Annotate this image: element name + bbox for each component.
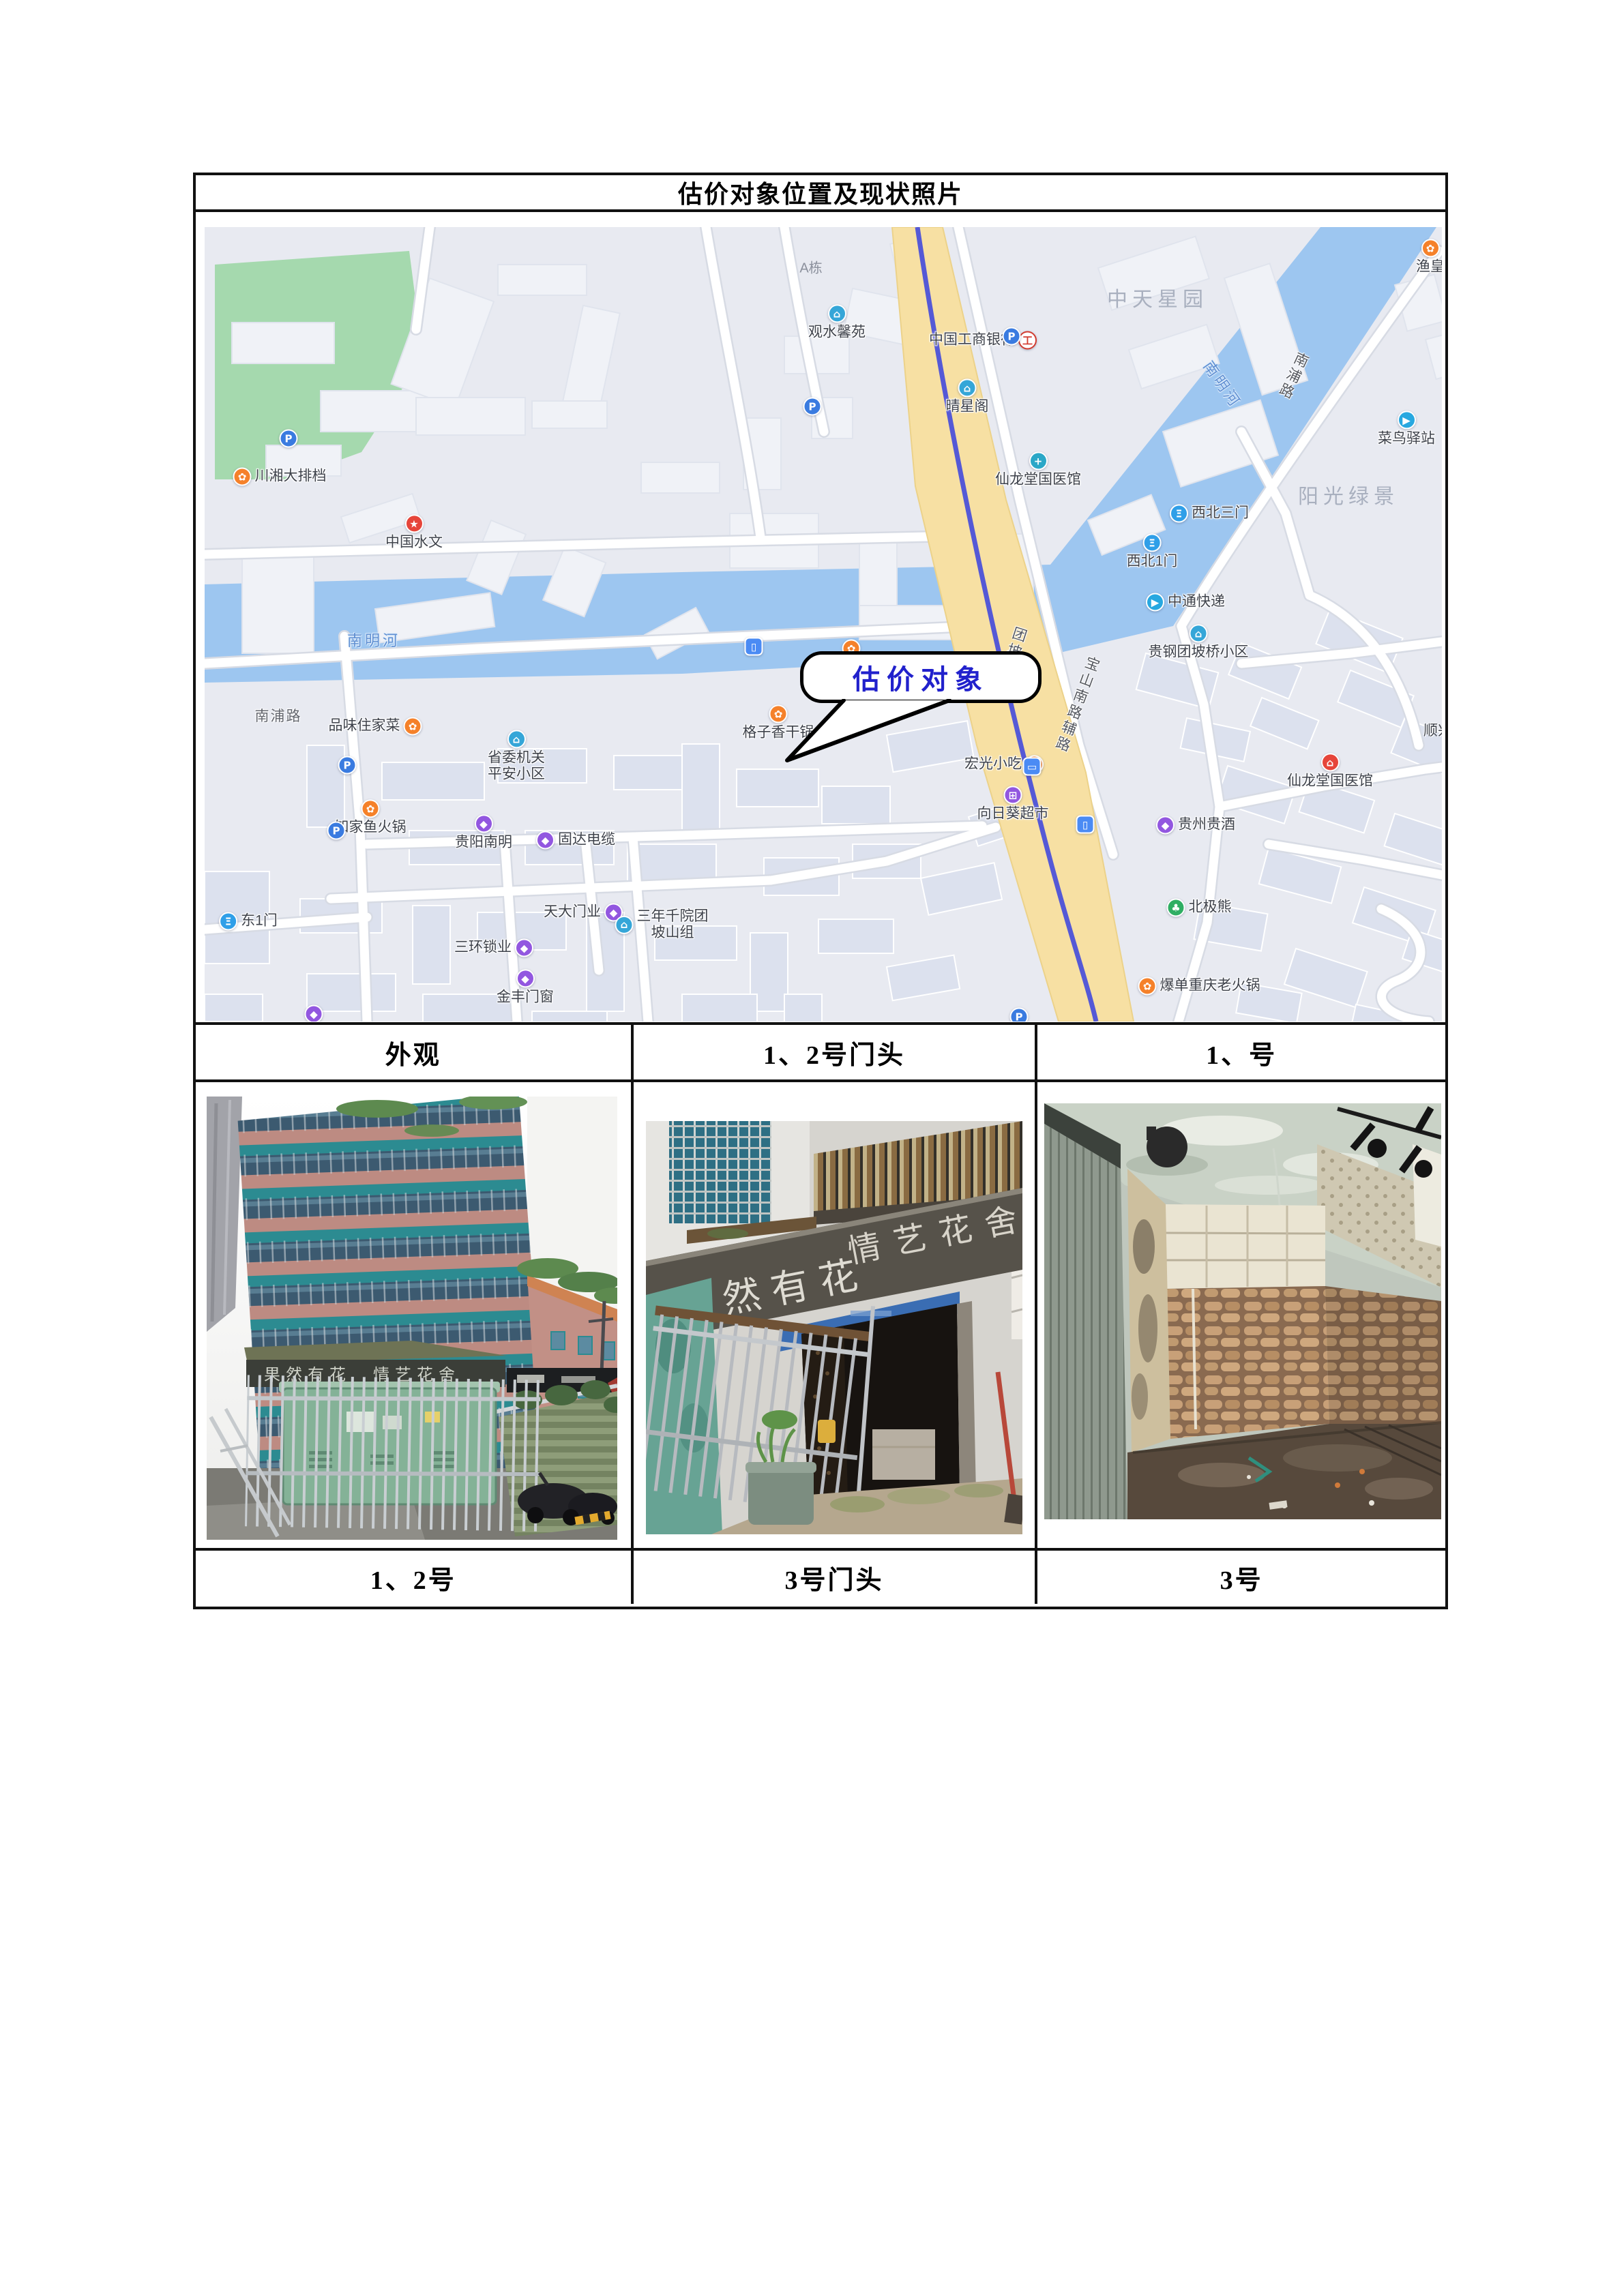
page-title: 估价对象位置及现状照片: [678, 175, 963, 210]
map-poi: ✿品味住家菜: [329, 717, 422, 736]
parking-icon: P: [327, 822, 346, 840]
map-poi-label: 三环锁业: [454, 940, 512, 956]
shop-icon: ◆: [1156, 816, 1175, 835]
map-poi: ◆: [305, 1005, 323, 1022]
map-poi: ◆贵州贵酒: [1156, 816, 1235, 835]
caption-cell-12: 1、2号: [196, 1551, 631, 1604]
map-poi: ⌂三年千院团坡山组: [615, 908, 709, 941]
map-poi: ★中国水文: [385, 514, 443, 550]
caption-label: 1、2号: [370, 1559, 456, 1596]
map-poi: +仙龙堂国医馆: [995, 451, 1081, 488]
parking-icon: P: [1003, 327, 1021, 346]
header-label: 外观: [385, 1034, 441, 1071]
map-poi-label: 贵州贵酒: [1178, 817, 1235, 833]
food-icon: ✿: [233, 468, 252, 486]
map-poi: ✿渔皇: [1416, 239, 1442, 275]
caption-cell-3: 3号: [1035, 1551, 1445, 1604]
food-icon: ✿: [361, 799, 380, 818]
map-poi: P: [338, 756, 357, 775]
map-poi: ✿川湘大排档: [233, 468, 327, 486]
table-title-row: 估价对象位置及现状照片: [196, 175, 1445, 212]
star-icon: ★: [405, 514, 424, 533]
map-poi-label: 仙龙堂国医馆: [1287, 773, 1373, 789]
map-poi: ▭: [1023, 758, 1042, 776]
bus-icon: ▭: [1023, 758, 1042, 776]
map-poi-label: 宏光小吃: [964, 756, 1022, 773]
train-icon: ▯: [1076, 816, 1095, 834]
map-poi: ✿爆单重庆老火锅: [1138, 977, 1260, 996]
map-poi: ⌂仙龙堂国医馆: [1287, 753, 1373, 789]
map-poi-label: 晴星阁: [946, 398, 989, 415]
map-text-label: 南明河: [347, 629, 400, 651]
map-poi-label: 东1门: [241, 913, 278, 929]
map-poi: P: [1003, 327, 1021, 346]
shop-icon: ◆: [536, 831, 555, 850]
shop-icon: ◆: [516, 969, 535, 987]
map-poi: P: [1010, 1008, 1029, 1022]
map-poi-label: 爆单重庆老火锅: [1160, 978, 1260, 994]
map-poi-label: 中国水文: [385, 534, 443, 550]
map-poi-label: 菜鸟驿站: [1378, 430, 1435, 447]
map-poi-label: 三年千院团坡山组: [637, 908, 709, 941]
map-poi: ▯: [1076, 816, 1095, 834]
parking-icon: P: [803, 398, 822, 416]
map-text-label: 阳光绿景: [1298, 479, 1399, 509]
map-poi-label: 固达电缆: [558, 832, 615, 848]
map-poi: ◆固达电缆: [536, 831, 615, 850]
courier-icon: ▶: [1146, 593, 1164, 612]
map-poi: Ξ西北三门: [1170, 505, 1249, 523]
photo-storefront: 果然有花 情艺花舍: [646, 1121, 1022, 1534]
train-icon: ▯: [745, 638, 763, 656]
map-poi-layer: P✿川湘大排档★中国水文✿品味住家菜P⌂省委机关平安小区✿格子香干锅✿知家鱼火锅…: [205, 227, 1442, 1022]
map-poi-label: 川湘大排档: [255, 468, 327, 485]
map-poi-label: 观水馨苑: [808, 324, 866, 340]
photo-location-table: 估价对象位置及现状照片: [193, 173, 1448, 1609]
shop-icon: ◆: [475, 814, 493, 833]
map-poi-label: 省委机关平安小区: [488, 749, 545, 782]
map-poi: ◆金丰门窗: [497, 969, 554, 1005]
document-page: 估价对象位置及现状照片: [0, 0, 1624, 2296]
map-poi-label: 品味住家菜: [329, 718, 400, 734]
caption-label: 3号门头: [784, 1559, 883, 1596]
med-icon: +: [1029, 451, 1048, 470]
header-cell-exterior: 外观: [196, 1025, 631, 1079]
parking-icon: P: [280, 430, 298, 448]
medred-icon: ⌂: [1321, 753, 1340, 771]
map-poi-label: 中通快递: [1168, 594, 1225, 610]
courier-icon: ▶: [1398, 411, 1416, 429]
map-text-label: 顺兴: [1423, 719, 1442, 740]
map-row: 南明河南明河南浦路南浦路团坡桥宝山南路辅路中天星园阳光绿景A栋顺兴 P✿川湘大排…: [196, 212, 1445, 1025]
callout-label: 估价对象: [853, 657, 989, 697]
estate-icon: ⌂: [1190, 624, 1208, 642]
map-poi: P: [327, 822, 346, 840]
map-poi-label: 天大门业: [544, 904, 601, 921]
shop-icon: ◆: [515, 939, 533, 957]
header-label: 1、号: [1206, 1034, 1277, 1071]
map-poi-label: 北极熊: [1189, 899, 1232, 916]
caption-row: 1、2号 3号门头 3号: [196, 1551, 1445, 1604]
shop-icon: ◆: [305, 1005, 323, 1022]
map-poi-label: 仙龙堂国医馆: [995, 471, 1081, 488]
map-text-label: 中天星园: [1107, 282, 1208, 312]
gate-icon: Ξ: [219, 912, 237, 931]
caption-label: 3号: [1220, 1559, 1263, 1596]
estate-icon: ⌂: [958, 378, 977, 397]
header-cell-doorway-12: 1、2号门头: [631, 1025, 1035, 1079]
estate-icon: ⌂: [615, 916, 634, 934]
header-row: 外观 1、2号门头 1、号: [196, 1025, 1445, 1082]
map-poi: P: [803, 398, 822, 416]
map-text-label: A栋: [799, 257, 822, 277]
parking-icon: P: [1010, 1008, 1029, 1022]
header-label: 1、2号门头: [763, 1034, 905, 1071]
map-poi-label: 金丰门窗: [497, 989, 554, 1005]
map-poi: ⌂贵钢团坡桥小区: [1149, 624, 1249, 660]
header-cell-no1: 1、号: [1035, 1025, 1445, 1079]
map-poi: ♣北极熊: [1167, 899, 1232, 917]
icbc-icon: 工: [1018, 331, 1037, 350]
photo-cell-doorway-12: 果然有花 情艺花舍: [631, 1082, 1035, 1548]
map-poi-label: 贵阳南明: [455, 834, 512, 850]
food-icon: ✿: [1421, 239, 1440, 257]
gate-icon: Ξ: [1143, 533, 1162, 552]
map-poi: Ξ西北1门: [1127, 533, 1178, 569]
food-icon: ✿: [1138, 977, 1157, 996]
cart-icon: ⊞: [1004, 786, 1022, 804]
map-poi: ⌂省委机关平安小区: [488, 730, 545, 782]
map-poi: ◆三环锁业: [454, 939, 533, 957]
map-poi: P: [280, 430, 298, 448]
map-poi: ▶中通快递: [1146, 593, 1225, 612]
estate-icon: ⌂: [828, 304, 846, 323]
map-poi: ⌂观水馨苑: [808, 304, 866, 340]
map-poi: ◆贵阳南明: [455, 814, 512, 850]
photo-cell-exterior: 果然有花 情艺花舍: [196, 1082, 631, 1548]
green-icon: ♣: [1167, 899, 1185, 917]
map-poi-label: 向日葵超市: [977, 805, 1049, 822]
photo-cell-interior: [1035, 1082, 1445, 1548]
appraisal-object-callout: 估价对象: [800, 651, 1042, 703]
map-poi-label: 西北1门: [1127, 553, 1178, 569]
map-poi: ⊞向日葵超市: [977, 786, 1049, 822]
gate-icon: Ξ: [1170, 505, 1188, 523]
food-icon: ✿: [404, 717, 422, 736]
map-poi: ⌂晴星阁: [946, 378, 989, 415]
map-poi: ◆天大门业: [544, 904, 623, 922]
map-poi: ▯: [745, 638, 763, 656]
map-poi: ▶菜鸟驿站: [1378, 411, 1435, 447]
location-map: 南明河南明河南浦路南浦路团坡桥宝山南路辅路中天星园阳光绿景A栋顺兴 P✿川湘大排…: [205, 227, 1442, 1022]
photo-building-exterior: 果然有花 情艺花舍: [207, 1097, 617, 1540]
map-poi: Ξ东1门: [219, 912, 278, 931]
parking-icon: P: [338, 756, 357, 775]
map-poi-label: 西北三门: [1192, 505, 1249, 522]
map-poi-label: 渔皇: [1416, 258, 1442, 275]
map-text-label: 南浦路: [255, 705, 302, 726]
photo-row: 果然有花 情艺花舍: [196, 1082, 1445, 1551]
photo-shop-interior: [1044, 1103, 1441, 1519]
estate-icon: ⌂: [507, 730, 526, 748]
map-poi-label: 贵钢团坡桥小区: [1149, 644, 1249, 660]
caption-cell-door3: 3号门头: [631, 1551, 1035, 1604]
callout-tail-arrow: [778, 699, 962, 771]
